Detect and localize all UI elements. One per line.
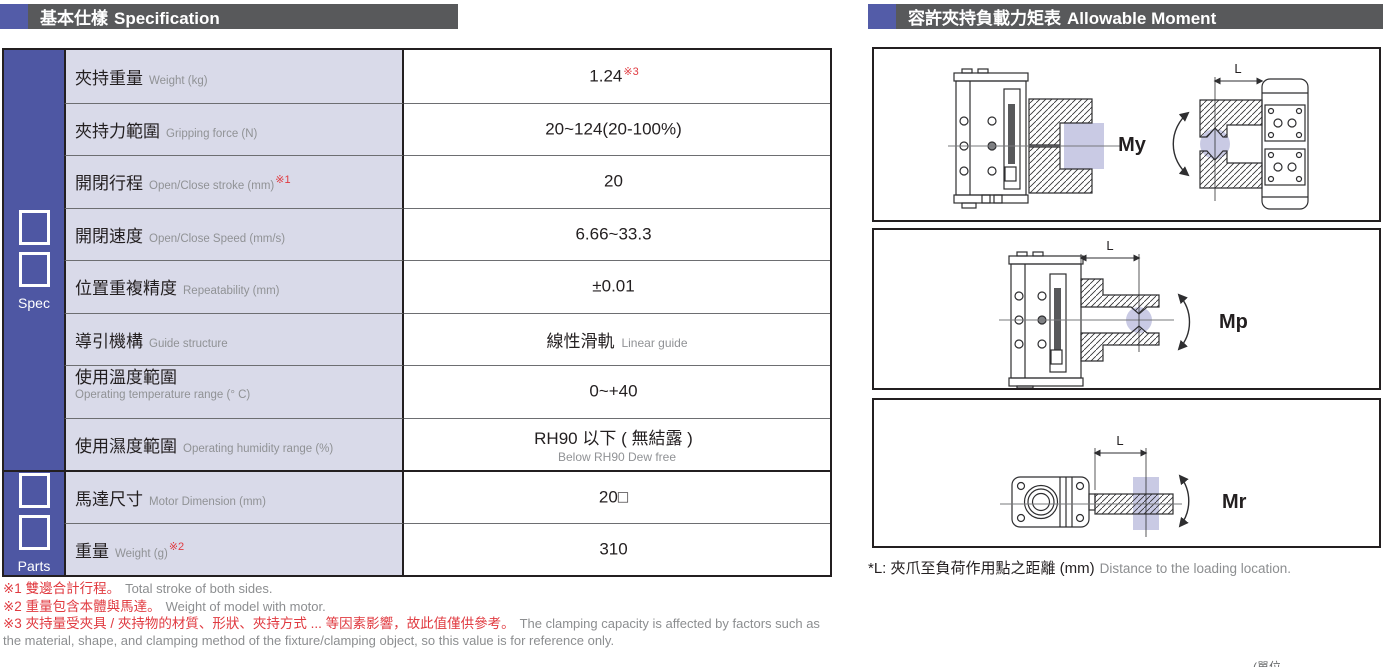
spec-table: Spec Parts 夾持重量Weight (kg) 1.24※3 夾持力範圍G… (2, 48, 832, 577)
spec-row-value: 310 (404, 523, 830, 576)
spec-row-label: 位置重複精度Repeatability (mm) (64, 260, 404, 313)
dim-label-l: L (1234, 61, 1241, 76)
moment-label-my: My (1118, 134, 1147, 156)
spec-row-label: 開閉速度Open/Close Speed (mm/s) (64, 208, 404, 261)
unit-note-clipped: (單位 (1253, 658, 1281, 667)
spec-row-value: ±0.01 (404, 260, 830, 313)
moment-panel-mr: L Mr (872, 398, 1381, 548)
spec-title-zh: 基本仕樣 (40, 9, 108, 28)
spec-row-value: 20□ (404, 470, 830, 523)
moment-panel-my: L My (872, 47, 1381, 222)
glyph-box-icon (19, 252, 50, 287)
spec-row-value: 1.24※3 (404, 50, 830, 103)
sidebar-label-spec: Spec (18, 295, 50, 311)
spec-row-label: 導引機構Guide structure (64, 313, 404, 366)
moment-diagram-my: L My (874, 49, 1379, 220)
spec-row-value: RH90 以下 ( 無結露 )Below RH90 Dew free (404, 418, 830, 471)
spec-row-label: 馬達尺寸Motor Dimension (mm) (64, 470, 404, 523)
accent-square-icon (0, 4, 28, 29)
spec-section-header: 基本仕樣Specification (0, 4, 458, 29)
moment-section-header: 容許夾持負載力矩表Allowable Moment (868, 4, 1383, 29)
footnotes: ※1 雙邊合計行程。Total stroke of both sides. ※2… (3, 581, 841, 650)
sidebar-label-parts: Parts (18, 558, 51, 574)
glyph-box-icon (19, 515, 50, 550)
datasheet-page: 基本仕樣Specification Spec Parts 夾持重量Weight … (0, 0, 1383, 667)
spec-row-value: 20~124(20-100%) (404, 103, 830, 156)
accent-square-icon (868, 4, 896, 29)
moment-diagram-mp: L Mp (874, 230, 1379, 388)
spec-row-label: 使用溫度範圍Operating temperature range (° C) (64, 365, 404, 418)
moment-caption: *L: 夾爪至負荷作用點之距離 (mm)Distance to the load… (868, 557, 1291, 578)
spec-row-label: 開閉行程Open/Close stroke (mm)※1 (64, 155, 404, 208)
sidebar-group-spec: Spec (4, 50, 64, 470)
dim-label-l: L (1106, 238, 1113, 253)
spec-row-label: 使用濕度範圍Operating humidity range (%) (64, 418, 404, 471)
moment-label-mp: Mp (1219, 311, 1248, 333)
spec-section-title: 基本仕樣Specification (40, 4, 220, 29)
spec-row-label: 夾持重量Weight (kg) (64, 50, 404, 103)
sidebar-group-parts: Parts (4, 470, 64, 575)
spec-row-value: 20 (404, 155, 830, 208)
footnote-1: ※1 雙邊合計行程。Total stroke of both sides. (3, 581, 841, 598)
moment-label-mr: Mr (1222, 491, 1247, 513)
spec-row-label: 夾持力範圍Gripping force (N) (64, 103, 404, 156)
moment-section-title: 容許夾持負載力矩表Allowable Moment (908, 4, 1216, 29)
dim-label-l: L (1116, 433, 1123, 448)
spec-row-label: 重量Weight (g)※2 (64, 523, 404, 576)
moment-title-en: Allowable Moment (1067, 9, 1216, 28)
spec-row-value: 0~+40 (404, 365, 830, 418)
moment-diagram-mr: L Mr (874, 400, 1379, 546)
moment-panel-mp: L Mp (872, 228, 1381, 390)
glyph-box-icon (19, 210, 50, 245)
spec-row-value: 6.66~33.3 (404, 208, 830, 261)
glyph-box-icon (19, 473, 50, 508)
footnote-3: ※3 夾持量受夾具 / 夾持物的材質、形狀、夾持方式 ... 等因素影響，故此值… (3, 616, 841, 649)
spec-title-en: Specification (114, 9, 220, 28)
moment-title-zh: 容許夾持負載力矩表 (908, 9, 1061, 28)
footnote-2: ※2 重量包含本體與馬達。Weight of model with motor. (3, 599, 841, 616)
spec-row-value: 線性滑軌Linear guide (404, 313, 830, 366)
